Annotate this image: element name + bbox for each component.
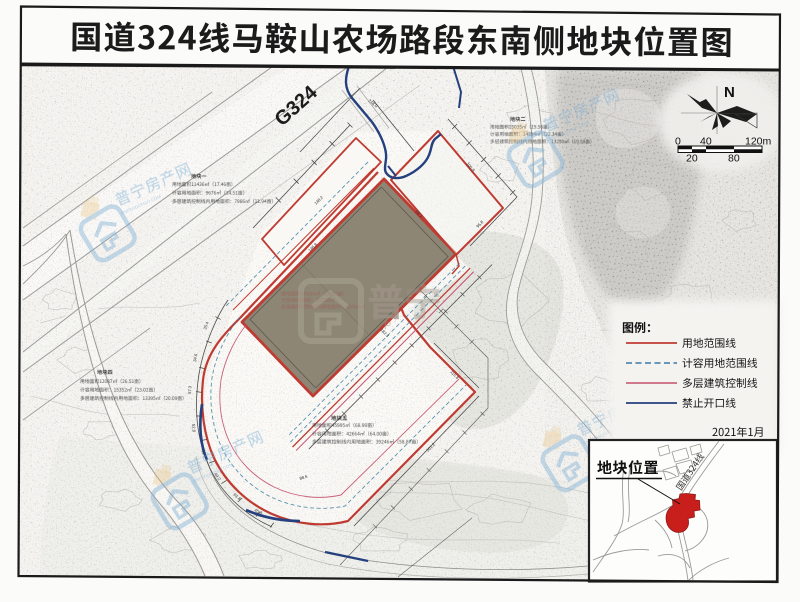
- svg-text:80: 80: [728, 153, 740, 165]
- svg-text:120m: 120m: [745, 136, 772, 148]
- svg-text:P: P: [384, 320, 391, 332]
- svg-text:40: 40: [700, 136, 712, 148]
- svg-text:57.3: 57.3: [187, 385, 192, 394]
- svg-text:N: N: [724, 84, 735, 101]
- svg-text:0: 0: [675, 136, 681, 148]
- svg-text:20: 20: [686, 153, 698, 165]
- svg-text:52.8: 52.8: [191, 424, 197, 433]
